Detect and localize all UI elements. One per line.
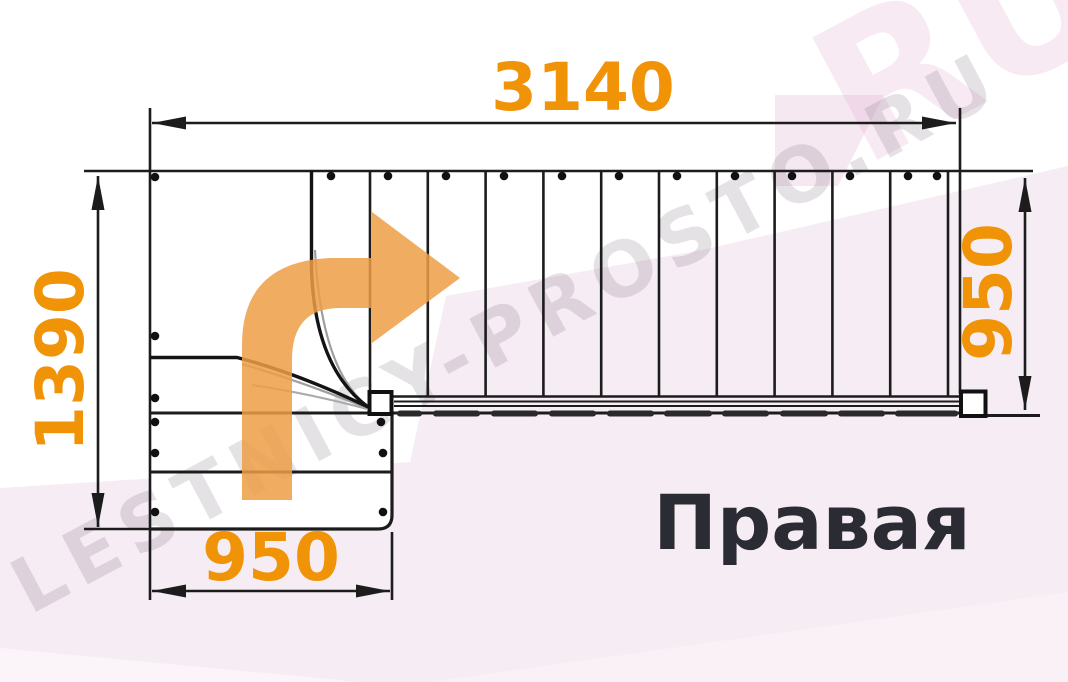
baluster-dash <box>838 411 885 417</box>
baluster-dash <box>607 411 654 417</box>
arrowhead-top <box>92 176 105 210</box>
baluster-dash <box>397 411 422 417</box>
baluster-dash <box>549 411 596 417</box>
dimension-left: 1390 <box>22 176 105 527</box>
screw-dot <box>788 172 797 181</box>
page-title: Правая <box>653 478 970 567</box>
baluster-dash <box>491 411 538 417</box>
newel-post-right <box>961 392 986 417</box>
screw-dot <box>442 172 451 181</box>
screw-dot <box>379 449 388 458</box>
arrowhead-left <box>152 117 186 130</box>
baluster-dash <box>664 411 712 417</box>
screw-dot <box>377 418 386 427</box>
screw-dot <box>151 173 160 182</box>
screw-dot <box>151 332 160 341</box>
baluster-dash <box>895 411 958 417</box>
screw-dot <box>846 172 855 181</box>
newel-post-left <box>370 392 392 414</box>
screw-dot <box>615 172 624 181</box>
baluster-dash <box>780 411 828 417</box>
baluster-dash <box>433 411 480 417</box>
stair-plan-scene: RU LESTNICY-PROSTO.RU <box>0 0 1068 682</box>
dimension-right-value: 950 <box>950 223 1027 361</box>
screw-dot <box>151 394 160 403</box>
screw-dot <box>151 418 160 427</box>
screw-dot <box>731 172 740 181</box>
screw-dot <box>904 172 913 181</box>
screw-dot <box>673 172 682 181</box>
screw-dot <box>379 508 388 517</box>
screw-dot <box>558 172 567 181</box>
screw-dot <box>933 172 942 181</box>
screw-dot <box>500 172 509 181</box>
screw-dot <box>151 508 160 517</box>
screw-dot <box>327 172 336 181</box>
dimension-left-value: 1390 <box>22 268 99 452</box>
screw-dot <box>151 449 160 458</box>
baluster-dash <box>722 411 769 417</box>
dimension-bottom-value: 950 <box>202 519 340 596</box>
screw-dot <box>384 172 393 181</box>
dimension-top-value: 3140 <box>491 49 675 126</box>
stair-plan-drawing: RU LESTNICY-PROSTO.RU <box>0 0 1068 682</box>
